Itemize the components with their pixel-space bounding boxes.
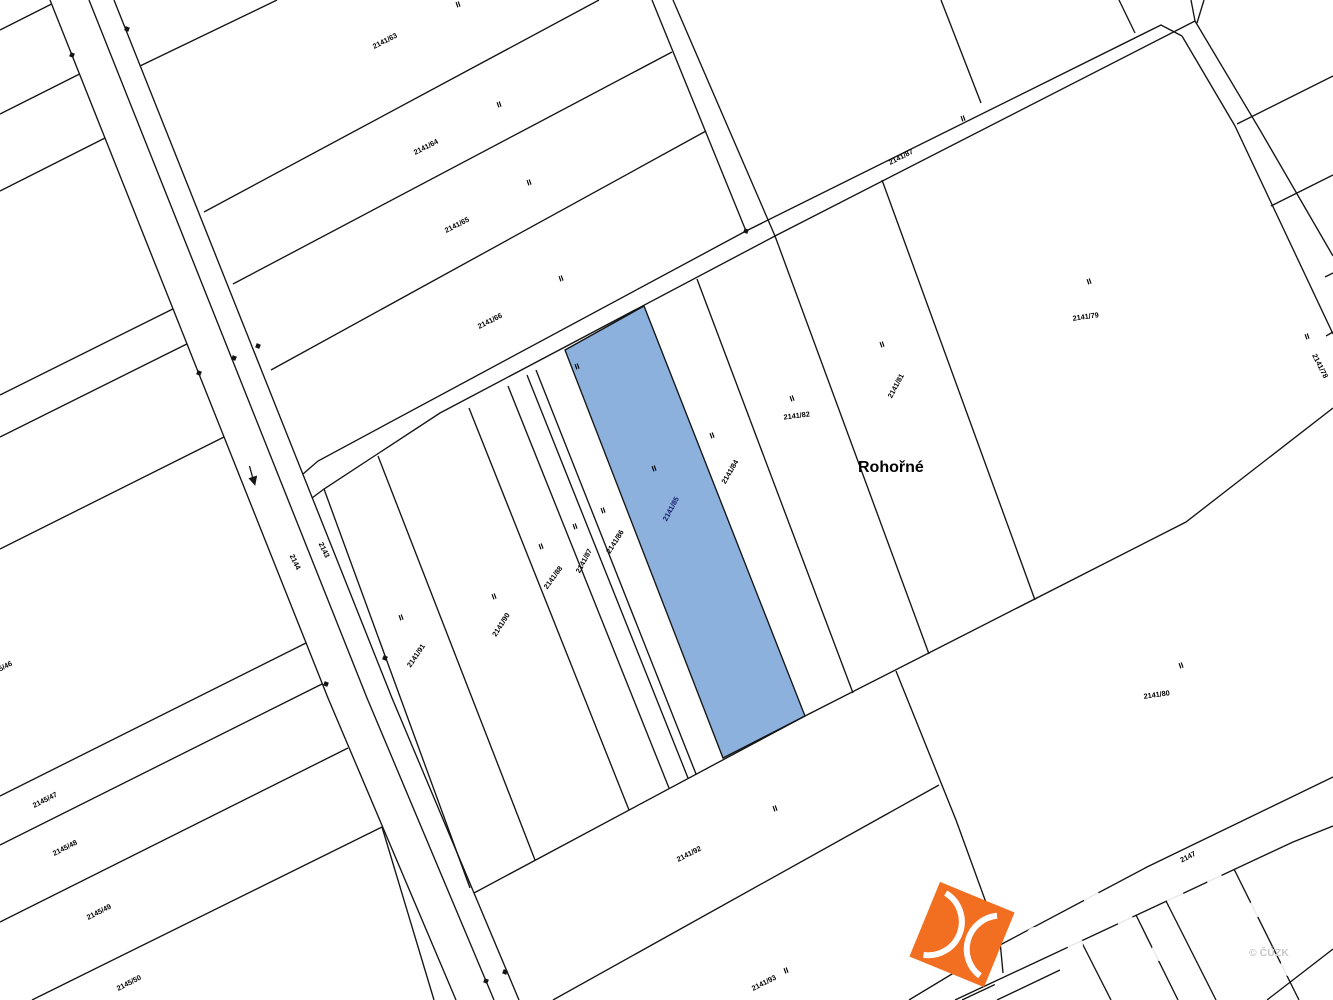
svg-text:© ČÚZK: © ČÚZK (1249, 946, 1289, 959)
svg-text:Rohořné: Rohořné (858, 459, 924, 476)
